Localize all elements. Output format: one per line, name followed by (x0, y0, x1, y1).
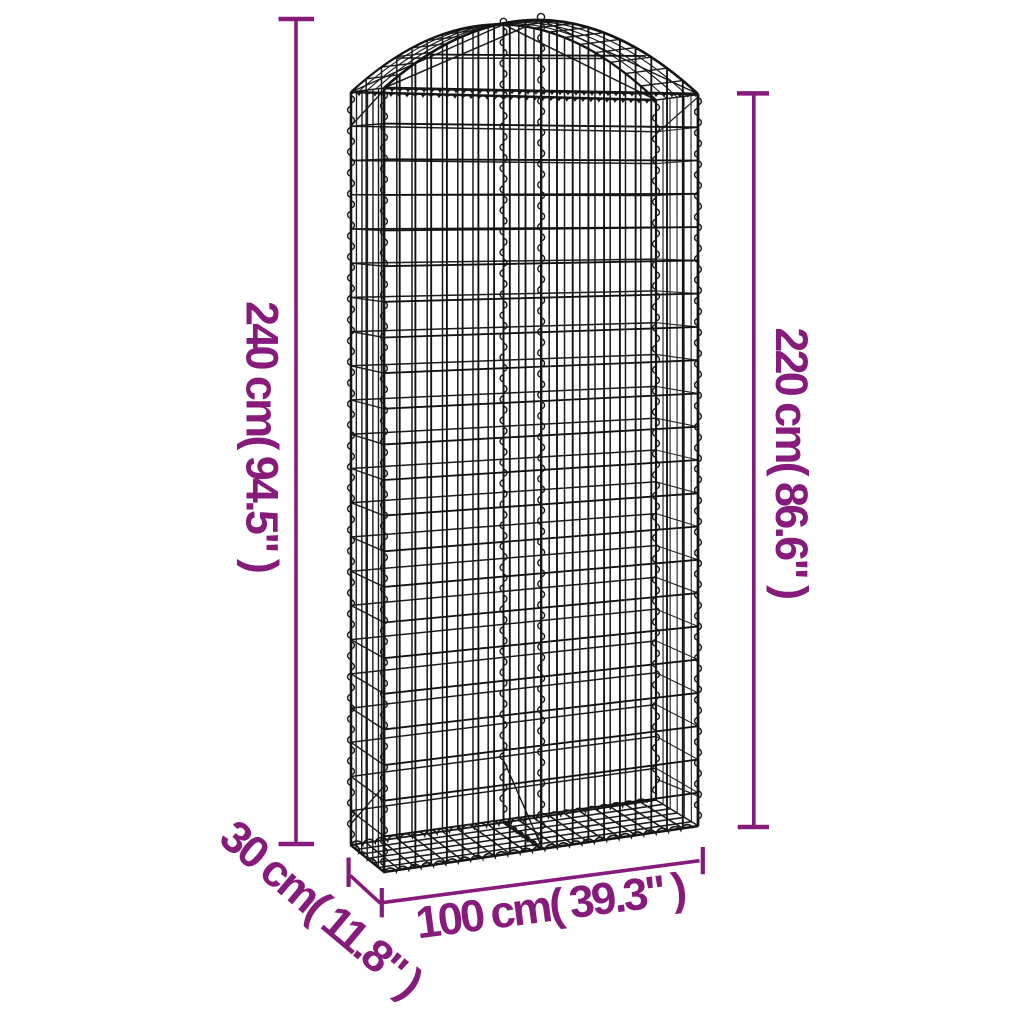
svg-text:240 cm( 94.5" ): 240 cm( 94.5" ) (237, 301, 288, 572)
svg-text:100 cm( 39.3" ): 100 cm( 39.3" ) (413, 863, 688, 949)
svg-text:220 cm( 86.6" ): 220 cm( 86.6" ) (766, 327, 817, 598)
